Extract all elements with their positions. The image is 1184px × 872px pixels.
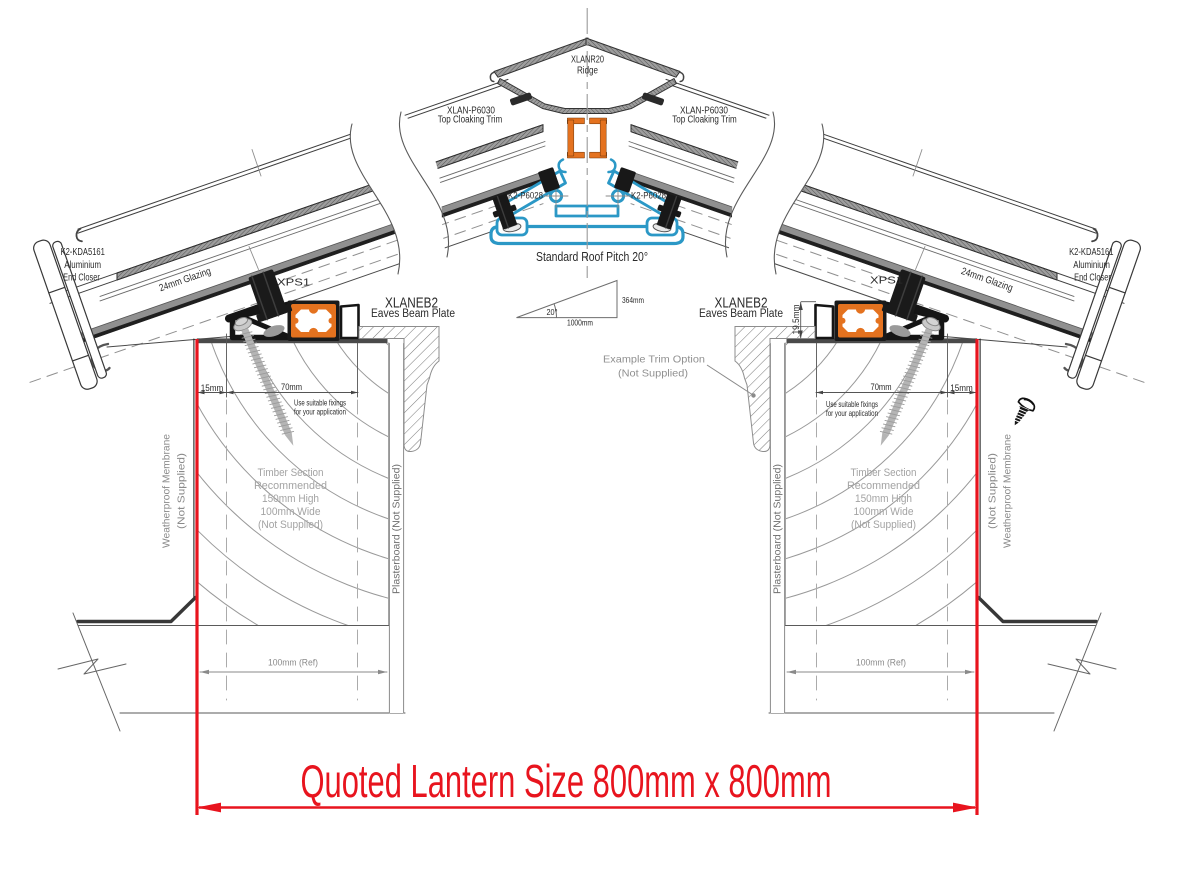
- svg-text:150mm High: 150mm High: [855, 493, 912, 505]
- svg-text:Plasterboard (Not Supplied): Plasterboard (Not Supplied): [391, 464, 403, 594]
- svg-text:End Closer: End Closer: [1074, 273, 1111, 284]
- svg-text:End Closer: End Closer: [63, 273, 100, 284]
- svg-text:(Not Supplied): (Not Supplied): [987, 453, 999, 529]
- svg-text:Plasterboard (Not Supplied): Plasterboard (Not Supplied): [772, 464, 784, 594]
- svg-text:Example Trim Option: Example Trim Option: [603, 354, 705, 366]
- svg-text:100mm (Ref): 100mm (Ref): [856, 658, 906, 669]
- svg-text:100mm (Ref): 100mm (Ref): [268, 658, 318, 669]
- svg-text:100mm Wide: 100mm Wide: [261, 506, 321, 518]
- svg-text:15mm: 15mm: [201, 383, 224, 393]
- svg-text:1000mm: 1000mm: [567, 318, 593, 328]
- svg-text:K2-KDA5161: K2-KDA5161: [61, 247, 106, 258]
- svg-text:Timber Section: Timber Section: [851, 467, 917, 479]
- svg-text:150mm High: 150mm High: [262, 493, 319, 505]
- svg-text:(Not Supplied): (Not Supplied): [258, 519, 323, 531]
- svg-text:XPS1: XPS1: [870, 276, 904, 287]
- svg-text:Top Cloaking Trim: Top Cloaking Trim: [672, 115, 737, 126]
- svg-text:XLANR20: XLANR20: [571, 55, 604, 66]
- svg-text:XPS1: XPS1: [277, 278, 311, 289]
- svg-text:Quoted Lantern Size 800mm x 80: Quoted Lantern Size 800mm x 800mm: [301, 755, 832, 807]
- svg-text:70mm: 70mm: [871, 382, 892, 392]
- svg-text:20°: 20°: [547, 307, 558, 317]
- svg-text:70mm: 70mm: [281, 382, 302, 392]
- svg-text:15mm: 15mm: [950, 383, 973, 393]
- svg-text:Aluminium: Aluminium: [64, 260, 101, 271]
- svg-text:Eaves Beam Plate: Eaves Beam Plate: [699, 308, 783, 320]
- svg-text:364mm: 364mm: [622, 295, 644, 305]
- svg-text:Recommended: Recommended: [254, 480, 327, 492]
- svg-text:K2-P6028: K2-P6028: [631, 191, 666, 201]
- svg-text:K2-P6028: K2-P6028: [508, 191, 543, 201]
- svg-text:for your application: for your application: [826, 408, 878, 418]
- svg-text:Timber Section: Timber Section: [258, 467, 324, 479]
- svg-text:Ridge: Ridge: [577, 66, 598, 77]
- svg-text:for your application: for your application: [294, 407, 346, 417]
- svg-text:Aluminium: Aluminium: [1073, 260, 1110, 271]
- svg-text:19.5mm: 19.5mm: [791, 305, 801, 335]
- svg-text:(Not Supplied): (Not Supplied): [618, 368, 688, 380]
- svg-text:Recommended: Recommended: [847, 480, 920, 492]
- svg-text:(Not Supplied): (Not Supplied): [176, 453, 188, 529]
- svg-text:Top Cloaking Trim: Top Cloaking Trim: [438, 115, 503, 126]
- svg-text:K2-KDA5161: K2-KDA5161: [1069, 247, 1114, 258]
- svg-text:(Not Supplied): (Not Supplied): [851, 519, 916, 531]
- svg-text:Standard Roof Pitch 20°: Standard Roof Pitch 20°: [536, 250, 648, 264]
- svg-text:Weatherproof Membrane: Weatherproof Membrane: [1002, 434, 1014, 548]
- svg-text:Eaves Beam Plate: Eaves Beam Plate: [371, 308, 455, 320]
- svg-text:Weatherproof Membrane: Weatherproof Membrane: [161, 434, 173, 548]
- svg-text:100mm Wide: 100mm Wide: [854, 506, 914, 518]
